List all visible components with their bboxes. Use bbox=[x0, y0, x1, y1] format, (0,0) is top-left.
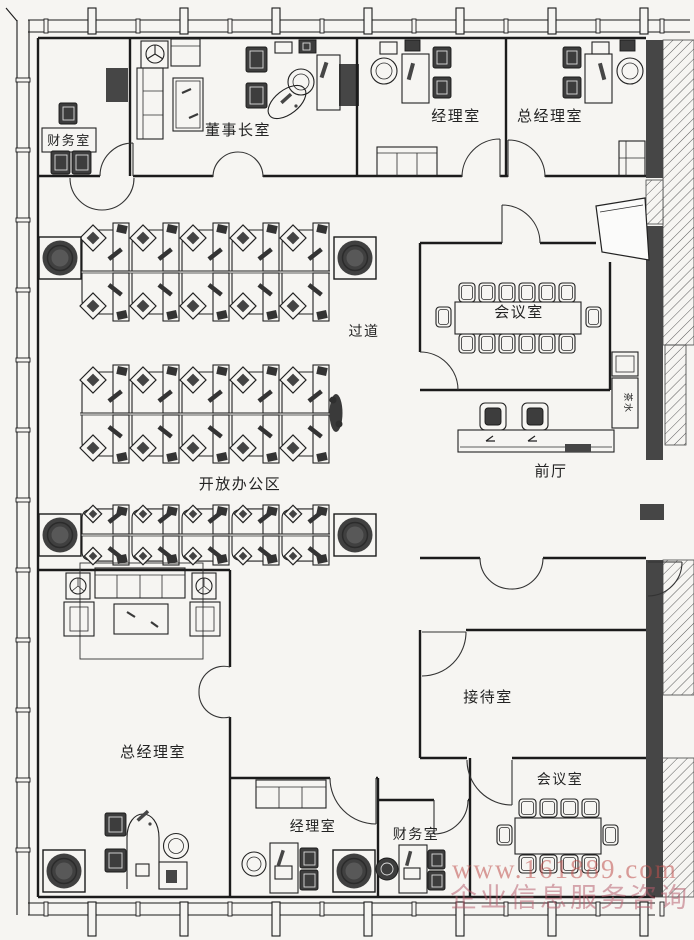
column bbox=[39, 514, 81, 556]
column bbox=[334, 514, 376, 556]
watermark-url: www.161889.com bbox=[452, 854, 678, 884]
mullion-tick bbox=[320, 902, 324, 916]
mullion-tick bbox=[320, 19, 324, 33]
label-finance-top: 财务室 bbox=[47, 133, 91, 149]
mullion-tick bbox=[16, 708, 30, 712]
mullion bbox=[272, 8, 280, 34]
mullion bbox=[364, 8, 372, 34]
label-gm-bottom: 总经理室 bbox=[120, 743, 186, 761]
projection-screen bbox=[596, 198, 649, 260]
mullion bbox=[180, 902, 188, 936]
mullion bbox=[88, 902, 96, 936]
label-manager-bottom: 经理室 bbox=[290, 818, 337, 835]
label-front-hall: 前厅 bbox=[534, 462, 567, 480]
watermark-slogan: 企业信息服务咨询 bbox=[450, 883, 690, 913]
column bbox=[334, 237, 376, 279]
mullion-tick bbox=[16, 358, 30, 362]
mullion bbox=[88, 8, 96, 34]
column bbox=[43, 850, 85, 892]
mullion-tick bbox=[16, 148, 30, 152]
mullion-tick bbox=[16, 218, 30, 222]
mullion-tick bbox=[228, 902, 232, 916]
label-chairman: 董事长室 bbox=[205, 121, 271, 139]
mullion bbox=[640, 8, 648, 34]
mullion-tick bbox=[412, 19, 416, 33]
mullion-tick bbox=[16, 848, 30, 852]
mullion-tick bbox=[16, 778, 30, 782]
label-manager-top: 经理室 bbox=[431, 107, 481, 125]
mullion-tick bbox=[44, 902, 48, 916]
mullion-tick bbox=[504, 19, 508, 33]
floor-plan-page: 财务室 董事长室 经理室 总经理室 会议室 过道 开放办公区 前厅 茶水 总经理… bbox=[0, 0, 694, 940]
mullion bbox=[456, 8, 464, 34]
plant bbox=[330, 394, 343, 432]
mullion-tick bbox=[16, 498, 30, 502]
mullion-tick bbox=[16, 288, 30, 292]
mullion-tick bbox=[660, 19, 664, 33]
mullion-tick bbox=[136, 19, 140, 33]
label-finance-bottom: 财务室 bbox=[393, 826, 440, 843]
column bbox=[333, 850, 375, 892]
mullion-tick bbox=[228, 19, 232, 33]
label-corridor: 过道 bbox=[349, 324, 380, 340]
mullion-tick bbox=[16, 568, 30, 572]
watermark: www.161889.com 企业信息服务咨询 bbox=[450, 854, 690, 913]
mullion bbox=[180, 8, 188, 34]
mullion-tick bbox=[16, 428, 30, 432]
mullion-tick bbox=[412, 902, 416, 916]
mullion-tick bbox=[16, 638, 30, 642]
column bbox=[39, 237, 81, 279]
label-gm-top: 总经理室 bbox=[517, 107, 583, 125]
label-meeting-bottom: 会议室 bbox=[537, 771, 584, 788]
mullion-tick bbox=[16, 78, 30, 82]
label-meeting-top: 会议室 bbox=[494, 303, 544, 321]
mullion-tick bbox=[44, 19, 48, 33]
mullion-tick bbox=[136, 902, 140, 916]
label-reception: 接待室 bbox=[463, 688, 513, 706]
mullion bbox=[364, 902, 372, 936]
floor-plan-svg: 财务室 董事长室 经理室 总经理室 会议室 过道 开放办公区 前厅 茶水 总经理… bbox=[0, 0, 694, 940]
label-open-office: 开放办公区 bbox=[199, 475, 282, 493]
mullion bbox=[548, 8, 556, 34]
mullion bbox=[272, 902, 280, 936]
label-pantry: 茶水 bbox=[622, 392, 634, 413]
mullion-tick bbox=[596, 19, 600, 33]
